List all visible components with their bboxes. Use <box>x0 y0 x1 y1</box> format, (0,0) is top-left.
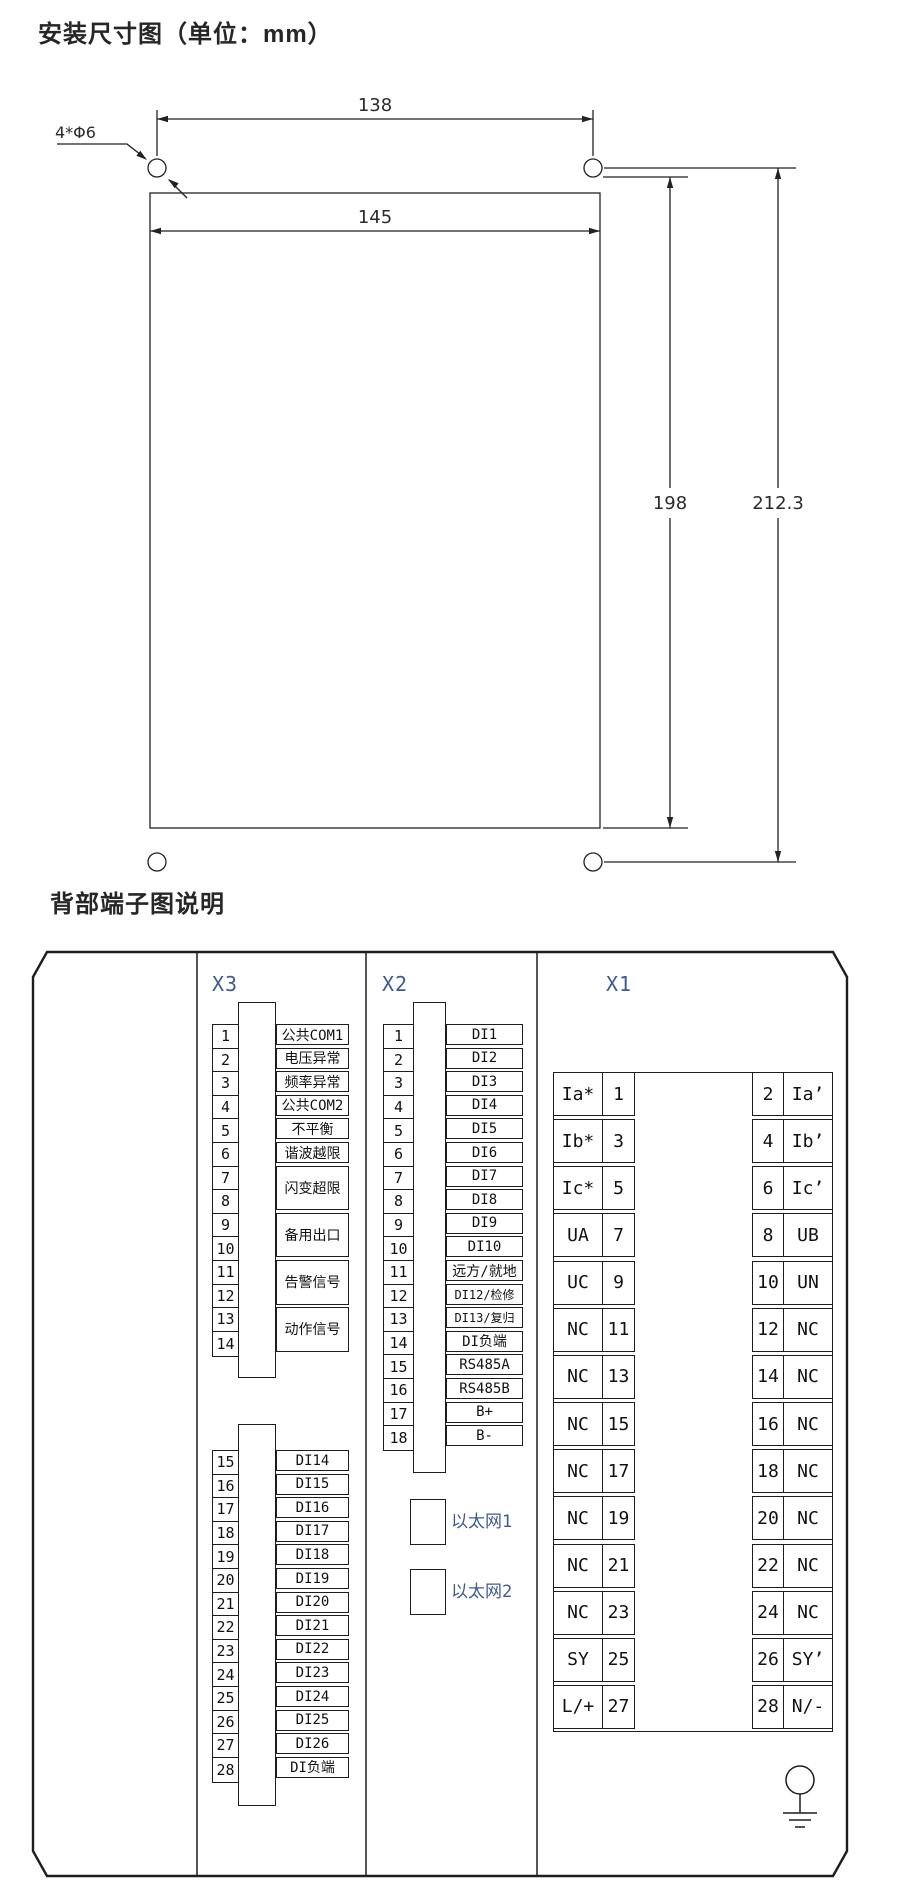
terminal-label: DI1 <box>446 1024 523 1045</box>
x1-left-number: 21 <box>602 1544 635 1588</box>
terminal-number: 6 <box>213 1143 238 1167</box>
ethernet-port-1-label: 以太网1 <box>451 1499 512 1545</box>
terminal-label: 频率异常 <box>276 1071 349 1092</box>
terminal-number: 23 <box>213 1640 238 1664</box>
x2-connector-bar <box>413 1002 446 1473</box>
mounting-hole-top-left <box>148 159 166 177</box>
terminal-diagram-title: 背部端子图说明 <box>50 884 225 919</box>
x1-left-number: 15 <box>602 1402 635 1446</box>
x3-upper-connector-bar <box>238 1002 276 1378</box>
terminal-label: RS485B <box>446 1378 523 1399</box>
x1-left-label: NC <box>553 1449 603 1493</box>
x1-left-number: 25 <box>602 1638 635 1682</box>
mounting-hole-top-right <box>584 159 602 177</box>
x3-lower-connector-bar <box>238 1424 276 1806</box>
x1-right-label: NC <box>783 1402 833 1446</box>
x1-left-label: L/+ <box>553 1685 603 1729</box>
dimension-drawing <box>57 110 796 871</box>
dimension-diagram-title: 安装尺寸图（单位：mm） <box>38 14 333 49</box>
terminal-label: DI16 <box>276 1497 349 1518</box>
x1-right-label: SY’ <box>783 1638 833 1682</box>
x1-left-label: NC <box>553 1496 603 1540</box>
x1-right-number: 16 <box>752 1402 784 1446</box>
terminal-number: 20 <box>213 1569 238 1593</box>
terminal-label: DI22 <box>276 1639 349 1660</box>
terminal-label: 谐波越限 <box>276 1142 349 1163</box>
terminal-number: 2 <box>213 1049 238 1073</box>
terminal-number: 3 <box>213 1072 238 1096</box>
terminal-label: DI20 <box>276 1592 349 1613</box>
x1-left-label: NC <box>553 1308 603 1352</box>
terminal-number: 7 <box>384 1167 413 1191</box>
x1-right-number: 6 <box>752 1166 784 1210</box>
x1-right-number: 18 <box>752 1449 784 1493</box>
terminal-label: DI25 <box>276 1710 349 1731</box>
x1-left-label: Ia* <box>553 1072 603 1116</box>
x1-right-number: 4 <box>752 1119 784 1163</box>
dim-body-height: 198 <box>653 493 687 514</box>
terminal-label: B- <box>446 1425 523 1446</box>
terminal-label: DI8 <box>446 1189 523 1210</box>
ground-symbol <box>783 1766 817 1827</box>
terminal-label: 告警信号 <box>276 1260 349 1305</box>
x1-left-number: 9 <box>602 1261 635 1305</box>
terminal-number: 9 <box>213 1214 238 1238</box>
x1-left-number: 17 <box>602 1449 635 1493</box>
terminal-label: 公共COM2 <box>276 1095 349 1116</box>
dim-overall-height: 212.3 <box>752 493 804 514</box>
x1-right-number: 8 <box>752 1213 784 1257</box>
x1-right-number: 24 <box>752 1591 784 1635</box>
x1-left-label: Ib* <box>553 1119 603 1163</box>
terminal-label: DI2 <box>446 1048 523 1069</box>
terminal-label: DI4 <box>446 1095 523 1116</box>
terminal-number: 2 <box>384 1049 413 1073</box>
terminal-number: 1 <box>384 1025 413 1049</box>
x1-left-number: 1 <box>602 1072 635 1116</box>
terminal-label: DI12/检修 <box>446 1284 523 1305</box>
connector-x2-label: X2 <box>382 972 408 996</box>
terminal-number: 1 <box>213 1025 238 1049</box>
terminal-number: 11 <box>384 1261 413 1285</box>
terminal-number: 10 <box>384 1237 413 1261</box>
x1-left-label: NC <box>553 1402 603 1446</box>
ethernet-port-2-label: 以太网2 <box>451 1569 512 1615</box>
terminal-number: 10 <box>213 1237 238 1261</box>
terminal-number: 17 <box>213 1498 238 1522</box>
terminal-label: 远方/就地 <box>446 1260 523 1281</box>
x3-lower-number-column: 1516171819202122232425262728 <box>212 1450 239 1783</box>
terminal-number: 13 <box>213 1308 238 1332</box>
terminal-label: DI26 <box>276 1733 349 1754</box>
x1-left-label: NC <box>553 1591 603 1635</box>
terminal-number: 18 <box>384 1426 413 1450</box>
x1-right-label: Ib’ <box>783 1119 833 1163</box>
x1-right-label: NC <box>783 1496 833 1540</box>
terminal-number: 5 <box>213 1119 238 1143</box>
terminal-number: 14 <box>384 1332 413 1356</box>
x1-right-number: 14 <box>752 1355 784 1399</box>
terminal-label: 公共COM1 <box>276 1024 349 1045</box>
terminal-label: DI7 <box>446 1166 523 1187</box>
terminal-label: 电压异常 <box>276 1048 349 1069</box>
dimension-arrowheads <box>136 116 781 862</box>
terminal-label: DI23 <box>276 1662 349 1683</box>
x1-right-label: UB <box>783 1213 833 1257</box>
x1-right-label: NC <box>783 1355 833 1399</box>
ground-terminal-circle <box>786 1766 814 1794</box>
x1-right-label: UN <box>783 1261 833 1305</box>
x1-left-number: 13 <box>602 1355 635 1399</box>
terminal-number: 7 <box>213 1167 238 1191</box>
x1-right-label: NC <box>783 1449 833 1493</box>
x1-left-label: NC <box>553 1544 603 1588</box>
terminal-label: DI10 <box>446 1236 523 1257</box>
x1-left-number: 11 <box>602 1308 635 1352</box>
x1-left-label: UC <box>553 1261 603 1305</box>
manual-page: 138 145 198 212.3 4*Φ6 安装尺寸图（单位：mm） 背部端子… <box>0 0 900 1892</box>
terminal-number: 5 <box>384 1119 413 1143</box>
x1-right-label: NC <box>783 1544 833 1588</box>
connector-x1-label: X1 <box>606 972 632 996</box>
terminal-label: DI18 <box>276 1544 349 1565</box>
terminal-label: 不平衡 <box>276 1118 349 1139</box>
terminal-number: 16 <box>213 1475 238 1499</box>
terminal-label: DI21 <box>276 1615 349 1636</box>
terminal-number: 15 <box>213 1451 238 1475</box>
x1-right-number: 2 <box>752 1072 784 1116</box>
dim-body-width: 145 <box>358 207 392 228</box>
terminal-number: 25 <box>213 1687 238 1711</box>
terminal-label: DI6 <box>446 1142 523 1163</box>
terminal-number: 21 <box>213 1593 238 1617</box>
x1-left-label: UA <box>553 1213 603 1257</box>
terminal-label: DI24 <box>276 1686 349 1707</box>
x1-left-label: NC <box>553 1355 603 1399</box>
x1-right-number: 22 <box>752 1544 784 1588</box>
x1-right-label: NC <box>783 1308 833 1352</box>
terminal-number: 9 <box>384 1214 413 1238</box>
x1-left-number: 19 <box>602 1496 635 1540</box>
terminal-label: DI负端 <box>446 1331 523 1352</box>
x1-right-number: 12 <box>752 1308 784 1352</box>
x1-right-number: 20 <box>752 1496 784 1540</box>
terminal-number: 16 <box>384 1379 413 1403</box>
mounting-hole-bottom-left <box>148 853 166 871</box>
terminal-number: 27 <box>213 1734 238 1758</box>
connector-x3-label: X3 <box>212 972 238 996</box>
terminal-label: 备用出口 <box>276 1213 349 1258</box>
x3-upper-number-column: 1234567891011121314 <box>212 1024 239 1357</box>
x1-left-label: Ic* <box>553 1166 603 1210</box>
x1-left-number: 27 <box>602 1685 635 1729</box>
x2-number-column: 123456789101112131415161718 <box>383 1024 414 1451</box>
ethernet-port-2-box <box>410 1569 446 1615</box>
terminal-number: 6 <box>384 1143 413 1167</box>
terminal-label: DI负端 <box>276 1757 349 1778</box>
x1-left-number: 5 <box>602 1166 635 1210</box>
terminal-label: B+ <box>446 1402 523 1423</box>
x1-left-number: 23 <box>602 1591 635 1635</box>
terminal-number: 15 <box>384 1355 413 1379</box>
terminal-number: 8 <box>384 1190 413 1214</box>
terminal-number: 28 <box>213 1758 238 1782</box>
terminal-label: DI9 <box>446 1213 523 1234</box>
terminal-label: 动作信号 <box>276 1307 349 1352</box>
terminal-number: 18 <box>213 1522 238 1546</box>
terminal-number: 12 <box>213 1285 238 1309</box>
x1-left-number: 3 <box>602 1119 635 1163</box>
terminal-label: DI3 <box>446 1071 523 1092</box>
terminal-number: 14 <box>213 1332 238 1356</box>
terminal-label: DI15 <box>276 1474 349 1495</box>
device-body-outline <box>150 193 600 828</box>
terminal-label: DI5 <box>446 1118 523 1139</box>
terminal-label: 闪变超限 <box>276 1166 349 1211</box>
terminal-label: DI13/复归 <box>446 1307 523 1328</box>
x1-right-number: 26 <box>752 1638 784 1682</box>
x1-right-number: 10 <box>752 1261 784 1305</box>
terminal-number: 11 <box>213 1261 238 1285</box>
terminal-label: RS485A <box>446 1354 523 1375</box>
x1-left-number: 7 <box>602 1213 635 1257</box>
terminal-number: 13 <box>384 1308 413 1332</box>
x1-left-label: SY <box>553 1638 603 1682</box>
x1-right-number: 28 <box>752 1685 784 1729</box>
terminal-number: 8 <box>213 1190 238 1214</box>
terminal-number: 22 <box>213 1616 238 1640</box>
terminal-number: 4 <box>384 1096 413 1120</box>
terminal-number: 3 <box>384 1072 413 1096</box>
x1-right-label: N/- <box>783 1685 833 1729</box>
dim-hole-spacing-width: 138 <box>358 95 392 116</box>
terminal-number: 19 <box>213 1545 238 1569</box>
terminal-number: 17 <box>384 1403 413 1427</box>
hole-spec-label: 4*Φ6 <box>55 123 96 142</box>
mounting-hole-bottom-right <box>584 853 602 871</box>
terminal-number: 26 <box>213 1711 238 1735</box>
terminal-number: 12 <box>384 1285 413 1309</box>
ethernet-port-1-box <box>410 1499 446 1545</box>
terminal-number: 24 <box>213 1663 238 1687</box>
x1-right-label: Ic’ <box>783 1166 833 1210</box>
terminal-label: DI17 <box>276 1521 349 1542</box>
terminal-label: DI14 <box>276 1450 349 1471</box>
x1-right-label: Ia’ <box>783 1072 833 1116</box>
x1-right-label: NC <box>783 1591 833 1635</box>
terminal-number: 4 <box>213 1096 238 1120</box>
terminal-label: DI19 <box>276 1568 349 1589</box>
